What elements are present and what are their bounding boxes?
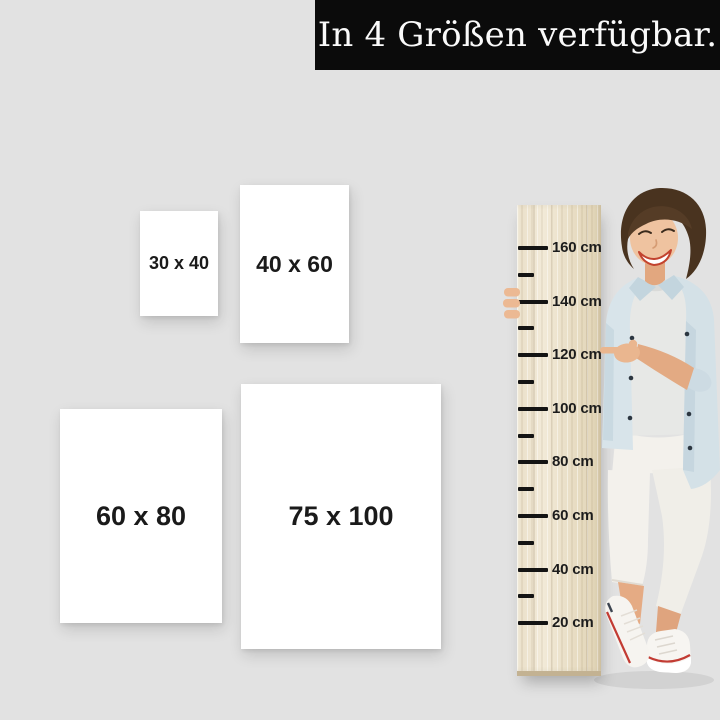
- gripping-fingers: [503, 288, 520, 319]
- size-label-60x80: 60 x 80: [96, 501, 186, 532]
- model-photo: [495, 185, 720, 700]
- size-label-30x40: 30 x 40: [149, 253, 209, 274]
- availability-banner-text: In 4 Größen verfügbar.: [318, 15, 718, 55]
- size-label-40x60: 40 x 60: [256, 251, 333, 278]
- sneaker-left: [605, 596, 649, 668]
- size-card-75x100: 75 x 100: [241, 384, 441, 649]
- floor-shadow: [594, 671, 714, 689]
- pointing-finger: [600, 347, 621, 354]
- size-label-75x100: 75 x 100: [288, 501, 393, 532]
- product-size-infographic: In 4 Größen verfügbar. 30 x 40 40 x 60 6…: [0, 0, 720, 720]
- sneaker-right: [647, 629, 691, 673]
- size-card-30x40: 30 x 40: [140, 211, 218, 316]
- model-head: [621, 188, 706, 285]
- size-card-60x80: 60 x 80: [60, 409, 222, 623]
- size-card-40x60: 40 x 60: [240, 185, 349, 343]
- availability-banner: In 4 Größen verfügbar.: [315, 0, 720, 70]
